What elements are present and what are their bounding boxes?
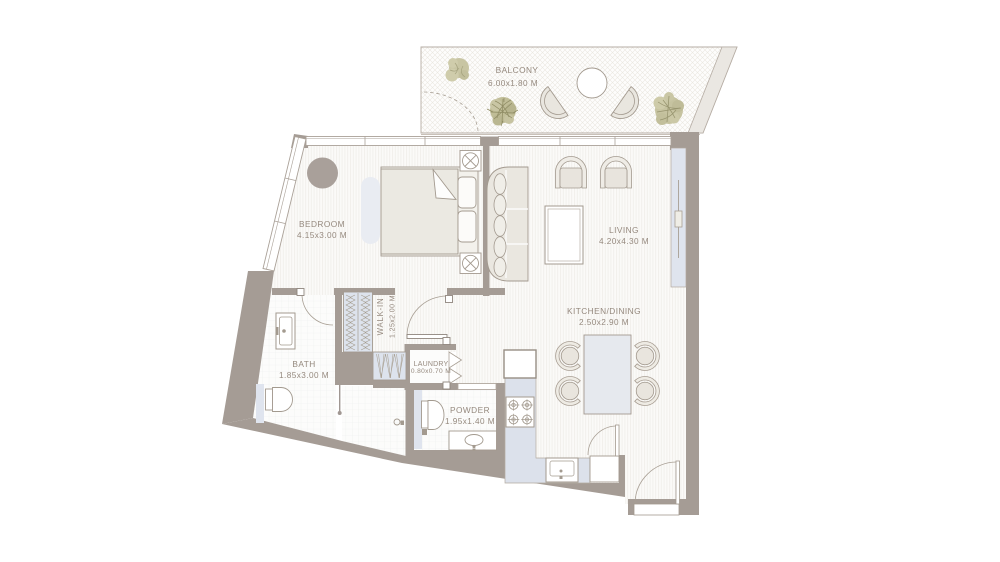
svg-text:BATH: BATH [292, 359, 315, 369]
svg-text:4.15x3.00 M: 4.15x3.00 M [297, 231, 347, 240]
svg-text:POWDER: POWDER [450, 405, 490, 415]
svg-text:4.20x4.30 M: 4.20x4.30 M [599, 237, 649, 246]
svg-text:WALK-IN: WALK-IN [376, 298, 385, 336]
svg-text:1.25x2.00 M: 1.25x2.00 M [390, 295, 397, 338]
svg-text:BEDROOM: BEDROOM [299, 219, 345, 229]
svg-text:LIVING: LIVING [609, 225, 639, 235]
svg-text:6.00x1.80 M: 6.00x1.80 M [488, 79, 538, 88]
svg-text:1.95x1.40 M: 1.95x1.40 M [445, 417, 495, 426]
svg-text:KITCHEN/DINING: KITCHEN/DINING [567, 306, 641, 316]
svg-text:0.80x0.70 M: 0.80x0.70 M [411, 368, 451, 375]
svg-text:BALCONY: BALCONY [496, 65, 539, 75]
svg-text:1.85x3.00 M: 1.85x3.00 M [279, 371, 329, 380]
svg-text:LAUNDRY: LAUNDRY [414, 361, 449, 368]
svg-text:2.50x2.90 M: 2.50x2.90 M [579, 318, 629, 327]
